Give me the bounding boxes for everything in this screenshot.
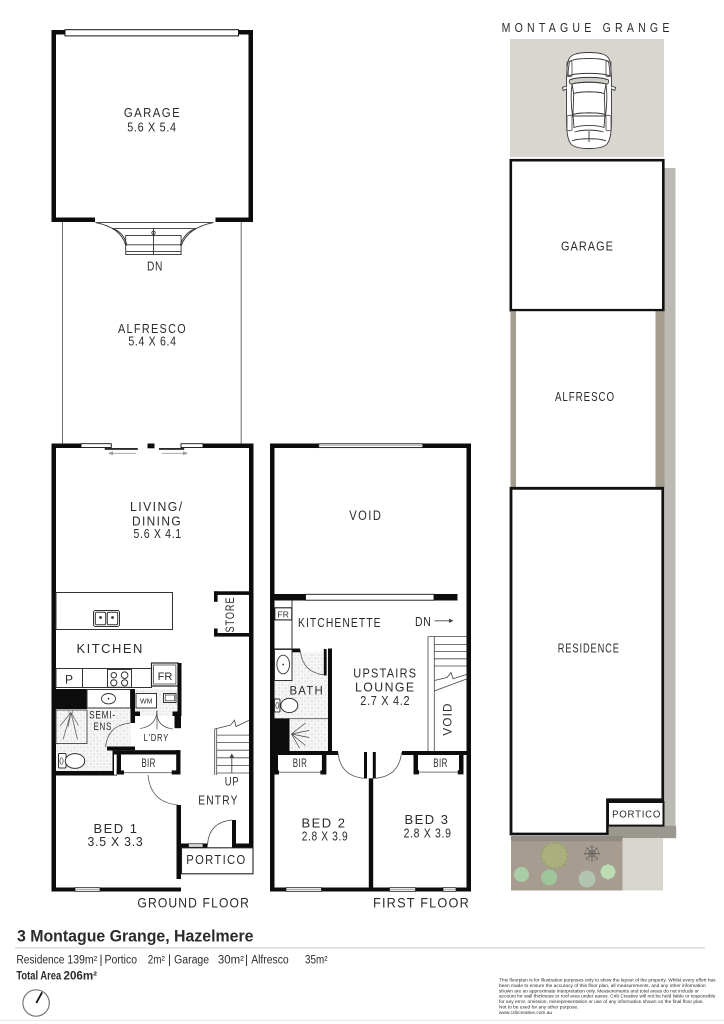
svg-text:BIR: BIR (293, 758, 308, 770)
svg-text:FR: FR (278, 610, 289, 620)
svg-text:L'DRY: L'DRY (144, 732, 170, 744)
svg-text:VOID: VOID (441, 702, 455, 735)
svg-text:STORE: STORE (225, 597, 237, 633)
svg-text:KITCHEN: KITCHEN (77, 641, 144, 656)
svg-text:Residence: Residence (16, 955, 64, 967)
svg-text:DN: DN (147, 259, 163, 274)
svg-text:RESIDENCE: RESIDENCE (558, 642, 620, 656)
svg-text:ALFRESCO: ALFRESCO (555, 390, 615, 404)
svg-text:Alfresco: Alfresco (251, 955, 289, 967)
svg-text:5.6 X 5.4: 5.6 X 5.4 (127, 121, 177, 135)
svg-text:BIR: BIR (141, 758, 156, 770)
svg-text:2m²: 2m² (148, 955, 165, 967)
svg-text:account for wall thickness or: account for wall thickness or roof area … (499, 994, 716, 1000)
svg-text:GARAGE: GARAGE (124, 105, 181, 120)
svg-text:been made to ensure the accura: been made to ensure the accuracy of this… (499, 983, 706, 989)
svg-text:VOID: VOID (349, 508, 382, 523)
svg-text:206m²: 206m² (64, 971, 98, 983)
svg-text:ENS: ENS (94, 721, 113, 733)
svg-text:MONTAGUE GRANGE: MONTAGUE GRANGE (502, 20, 674, 35)
svg-text:LOUNGE: LOUNGE (355, 680, 416, 695)
svg-text:BATH: BATH (289, 684, 324, 698)
svg-text:2.8 X 3.9: 2.8 X 3.9 (302, 830, 349, 844)
svg-text:WM: WM (140, 699, 153, 706)
svg-text:FR: FR (158, 671, 173, 683)
svg-text:5.6 X 4.1: 5.6 X 4.1 (134, 527, 182, 541)
svg-text:PORTICO: PORTICO (612, 809, 661, 821)
svg-text:|: | (100, 955, 103, 967)
svg-text:DN: DN (415, 615, 432, 629)
svg-text:ENTRY: ENTRY (198, 793, 238, 808)
svg-text:2.8 X 3.9: 2.8 X 3.9 (404, 827, 452, 841)
svg-text:5.4 X 6.4: 5.4 X 6.4 (128, 335, 176, 349)
svg-text:UP: UP (225, 777, 240, 789)
svg-text:P: P (65, 673, 73, 687)
svg-text:3.5 X 3.3: 3.5 X 3.3 (88, 835, 144, 849)
svg-text:shown are an approximate inter: shown are an approximate interpretation … (499, 988, 699, 994)
svg-text:BED 3: BED 3 (405, 812, 450, 827)
svg-text:FIRST FLOOR: FIRST FLOOR (373, 895, 470, 911)
svg-text:GROUND FLOOR: GROUND FLOOR (137, 895, 250, 911)
svg-text:139m²: 139m² (67, 955, 97, 967)
svg-text:LIVING/: LIVING/ (130, 499, 184, 514)
svg-text:Portico: Portico (105, 955, 138, 967)
svg-text:Garage: Garage (174, 955, 209, 967)
svg-text:KITCHENETTE: KITCHENETTE (298, 616, 382, 630)
svg-text:www.cribcreative.com.au: www.cribcreative.com.au (499, 1010, 552, 1016)
svg-text:BED 2: BED 2 (302, 816, 347, 831)
svg-text:UPSTAIRS: UPSTAIRS (353, 666, 417, 681)
svg-text:BED 1: BED 1 (94, 821, 139, 836)
svg-text:Total Area: Total Area (16, 971, 61, 983)
svg-text:PORTICO: PORTICO (186, 853, 246, 867)
svg-text:2.7 X 4.2: 2.7 X 4.2 (360, 694, 410, 708)
svg-text:for any error, omission, misre: for any error, omission, misrepresentati… (499, 999, 704, 1005)
svg-text:|: | (168, 955, 171, 967)
svg-text:Not to be used for any other p: Not to be used for any other purpose. (499, 1005, 578, 1011)
svg-text:SEMI-: SEMI- (89, 710, 116, 722)
svg-text:BIR: BIR (433, 758, 448, 770)
svg-text:GARAGE: GARAGE (561, 240, 614, 254)
svg-text:35m²: 35m² (305, 955, 328, 967)
svg-text:This floorplan is for illustra: This floorplan is for illustration purpo… (499, 978, 716, 984)
svg-text:30m²: 30m² (218, 955, 244, 967)
svg-text:|: | (245, 955, 248, 967)
svg-text:3 Montague Grange, Hazelmere: 3 Montague Grange, Hazelmere (17, 927, 254, 946)
